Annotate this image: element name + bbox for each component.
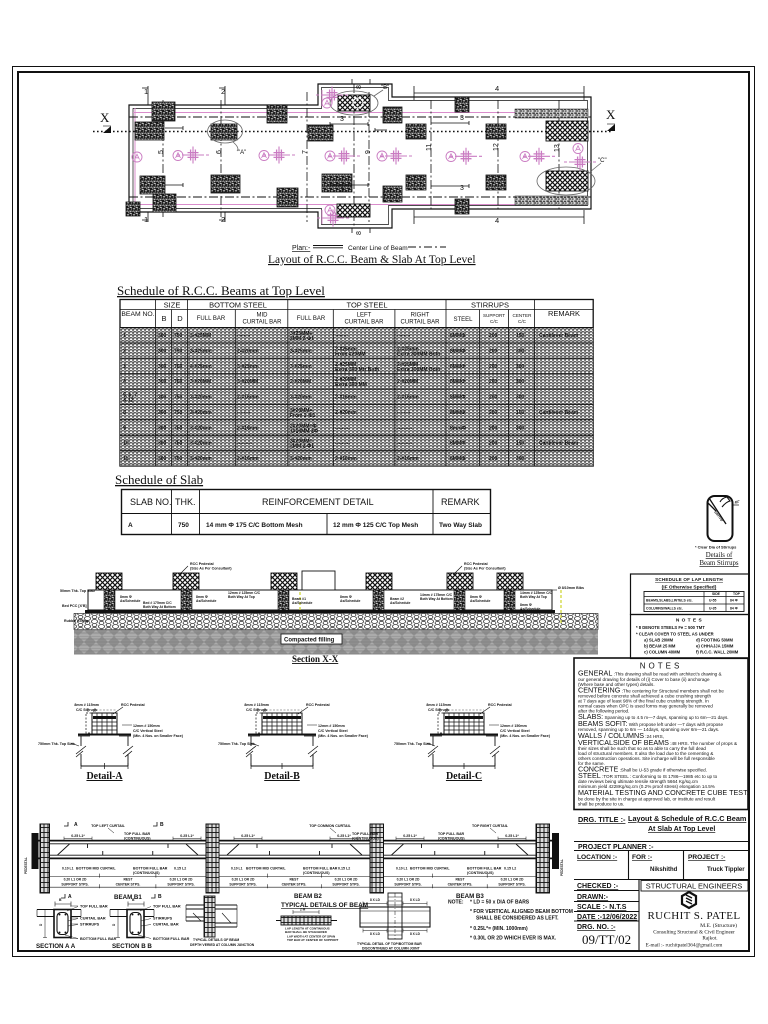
- svg-text:BOTTOM STEEL: BOTTOM STEEL: [209, 301, 267, 310]
- svg-text:C/C Stirrups: C/C Stirrups: [428, 708, 449, 712]
- svg-text:84 Ф: 84 Ф: [730, 607, 738, 611]
- svg-text:0.20 L1 OR 2D: 0.20 L1 OR 2D: [232, 877, 255, 881]
- svg-text:TOP FULL BAR: TOP FULL BAR: [153, 905, 181, 909]
- svg-text:4-#25mm: 4-#25mm: [190, 364, 212, 370]
- svg-text:9: 9: [123, 425, 126, 431]
- svg-text:C/C: C/C: [490, 319, 499, 324]
- svg-text:3-#20mm: 3-#20mm: [290, 456, 312, 462]
- svg-text:--------: --------: [397, 410, 411, 416]
- svg-text:f) R.C.C. WALL 20MM: f) R.C.C. WALL 20MM: [696, 650, 739, 655]
- svg-text:SUPPORT: SUPPORT: [483, 313, 505, 318]
- svg-text:200: 200: [489, 395, 498, 401]
- svg-text:BAR SHALL BE STAGGERED: BAR SHALL BE STAGGERED: [285, 930, 328, 934]
- svg-text:4: 4: [495, 84, 499, 93]
- svg-text:REMARK: REMARK: [441, 497, 480, 507]
- svg-text:0.20 L1 OR 2D: 0.20 L1 OR 2D: [501, 877, 524, 881]
- svg-text:300: 300: [158, 348, 167, 354]
- svg-text:8 X LD: 8 X LD: [370, 932, 381, 936]
- svg-text:2-#16mm: 2-#16mm: [237, 456, 259, 462]
- svg-text:2-#16mm: 2-#16mm: [335, 395, 357, 401]
- svg-text:TYPICAL DETAILS OF BEAM: TYPICAL DETAILS OF BEAM: [193, 938, 239, 942]
- svg-text:3: 3: [340, 187, 344, 194]
- svg-text:* CLEAR COVER TO STEEL AS UND: * CLEAR COVER TO STEEL AS UNDER: [636, 632, 714, 637]
- svg-text:TYPICAL DETAILS OF BEAM: TYPICAL DETAILS OF BEAM: [281, 902, 368, 909]
- svg-text:8MMФ: 8MMФ: [450, 441, 466, 447]
- svg-text:300: 300: [516, 456, 525, 462]
- svg-text:12: 12: [493, 143, 500, 151]
- svg-text:RUCHIT S. PATEL: RUCHIT S. PATEL: [647, 910, 740, 922]
- svg-text:Compacted filling: Compacted filling: [284, 638, 335, 644]
- svg-text:150: 150: [516, 333, 525, 339]
- svg-text:* Clear Dia of Stirrups: * Clear Dia of Stirrups: [695, 545, 737, 550]
- svg-text:BOTTOM FULL BAR: BOTTOM FULL BAR: [467, 867, 502, 871]
- svg-text:750mm Thk. Top Slab: 750mm Thk. Top Slab: [38, 742, 75, 746]
- svg-text:300: 300: [516, 395, 525, 401]
- svg-text:RCC Pedestal: RCC Pedestal: [121, 703, 145, 707]
- svg-text:Cantilever Beam: Cantilever Beam: [539, 333, 579, 339]
- svg-text:1: 1: [144, 215, 148, 224]
- svg-text:13: 13: [554, 144, 561, 152]
- svg-text:0.25 L1*: 0.25 L1*: [180, 834, 194, 838]
- svg-text:300: 300: [516, 425, 525, 431]
- svg-text:As/Schedule: As/Schedule: [196, 599, 216, 603]
- svg-text:NOTE:: NOTE:: [448, 900, 464, 906]
- svg-text:Detail-C: Detail-C: [446, 771, 482, 782]
- svg-text:DEPTH VERIED AT COLUMN JUNCTI: DEPTH VERIED AT COLUMN JUNCTION: [190, 943, 255, 947]
- svg-text:750: 750: [174, 395, 183, 401]
- svg-text:200: 200: [489, 410, 498, 416]
- svg-text:0.20 L1 OR 2D: 0.20 L1 OR 2D: [335, 877, 358, 881]
- svg-text:TOP FULL BAR: TOP FULL BAR: [352, 832, 379, 836]
- svg-text:Cantilever Beam: Cantilever Beam: [539, 441, 579, 447]
- svg-text:11: 11: [123, 456, 129, 462]
- svg-text:TOP RIGHT CURTAIL: TOP RIGHT CURTAIL: [472, 824, 509, 828]
- svg-text:Two Way Slab: Two Way Slab: [439, 522, 482, 529]
- svg-text:3-#20MM: 3-#20MM: [190, 379, 211, 385]
- svg-text:FULL BAR: FULL BAR: [297, 316, 326, 322]
- svg-text:From 2-Ф1: From 2-Ф1: [290, 413, 316, 419]
- svg-text:FOR :-: FOR :-: [632, 854, 652, 861]
- svg-text:(Size As Per Consultant): (Size As Per Consultant): [464, 567, 506, 571]
- svg-text:CURTAIL BAR: CURTAIL BAR: [401, 320, 441, 326]
- svg-text:SUPPORT STPS.: SUPPORT STPS.: [332, 883, 359, 887]
- svg-text:E-mail :- ruchitpatel364@gmail: E-mail :- ruchitpatel364@gmail.com: [646, 943, 723, 949]
- svg-text:10: 10: [123, 441, 129, 447]
- svg-text:2 M: 2 M: [300, 908, 306, 912]
- svg-text:C/C Vertical Steel: C/C Vertical Steel: [500, 729, 530, 733]
- svg-text:8mm # 115mm: 8mm # 115mm: [244, 703, 269, 707]
- svg-text:"B": "B": [381, 85, 389, 91]
- svg-text:2-#20mm: 2-#20mm: [335, 410, 357, 416]
- svg-text:Extra 300 MM: Extra 300 MM: [335, 382, 367, 388]
- svg-text:0.25 L1*: 0.25 L1*: [337, 834, 351, 838]
- svg-text:BOTTOM MID CURTAIL: BOTTOM MID CURTAIL: [76, 867, 116, 871]
- svg-text:8mm # 115mm: 8mm # 115mm: [426, 703, 451, 707]
- svg-text:U-35: U-35: [709, 607, 716, 611]
- svg-text:---------: ---------: [397, 441, 412, 447]
- svg-text:BOTTOM FULL BAR: BOTTOM FULL BAR: [133, 867, 168, 871]
- svg-text:Consulting Structural & Civil: Consulting Structural & Civil Engineer: [653, 930, 735, 936]
- svg-text:--------: --------: [335, 333, 349, 339]
- svg-text:a) SLAB 20MM: a) SLAB 20MM: [644, 638, 674, 643]
- svg-text:Extra 300MM Both: Extra 300MM Both: [397, 351, 440, 357]
- svg-text:CURTAIL BAR: CURTAIL BAR: [80, 917, 106, 921]
- svg-text:SIZE: SIZE: [164, 301, 181, 310]
- svg-text:12mm # 150mm: 12mm # 150mm: [133, 724, 160, 728]
- svg-text:3-#20mm: 3-#20mm: [190, 425, 212, 431]
- svg-text:Section X-X: Section X-X: [292, 654, 339, 664]
- svg-text:* FOR VERTICAL ALIGNED BEA: * FOR VERTICAL ALIGNED BEAM BOTTOM: [470, 909, 573, 915]
- svg-text:3: 3: [340, 116, 344, 123]
- svg-text:TYPICAL DETAIL OF TOP/BOTTOM B: TYPICAL DETAIL OF TOP/BOTTOM BAR: [357, 942, 422, 946]
- svg-text:SIDE: SIDE: [712, 592, 721, 596]
- svg-text:1: 1: [123, 333, 126, 339]
- svg-text:As/Schedule: As/Schedule: [390, 601, 410, 605]
- svg-text:DATE :-12/06/2022: DATE :-12/06/2022: [577, 914, 637, 921]
- svg-text:8MMФ: 8MMФ: [450, 333, 466, 339]
- svg-text:750: 750: [174, 379, 183, 385]
- svg-text:14 mm Ф 175 C/C Bottom Mesh: 14 mm Ф 175 C/C Bottom Mesh: [206, 522, 303, 529]
- svg-text:2: 2: [221, 215, 225, 224]
- svg-text:0.20 L1 OR 2D: 0.20 L1 OR 2D: [397, 877, 420, 881]
- svg-text:SHALL BE CONSIDERED AS LEF: SHALL BE CONSIDERED AS LEFT.: [476, 916, 559, 922]
- svg-text:1#16MM 2Ф: 1#16MM 2Ф: [290, 428, 319, 434]
- svg-text:50mm Thk. Top Slab: 50mm Thk. Top Slab: [60, 589, 95, 593]
- svg-text:Both Way At Bottom: Both Way At Bottom: [143, 605, 176, 609]
- svg-text:Schedule of R.C.C. Beams at To: Schedule of R.C.C. Beams at Top Level: [117, 283, 325, 298]
- svg-text:STIRRUPS: STIRRUPS: [80, 923, 100, 927]
- svg-text:Both Way At Bottom: Both Way At Bottom: [420, 597, 453, 601]
- svg-text:SUPPORT STPS.: SUPPORT STPS.: [394, 883, 421, 887]
- svg-text:750: 750: [174, 441, 183, 447]
- svg-text:4: 4: [123, 379, 126, 385]
- svg-text:X: X: [606, 107, 616, 122]
- svg-text:8MMФ: 8MMФ: [450, 395, 466, 401]
- svg-text:BEAM B1: BEAM B1: [114, 894, 142, 901]
- svg-text:DRG. TITLE :-: DRG. TITLE :-: [578, 815, 626, 824]
- svg-text:7: 7: [302, 150, 309, 154]
- svg-text:BEAM B2: BEAM B2: [294, 893, 322, 900]
- svg-text:0.10 L1: 0.10 L1: [396, 867, 408, 871]
- svg-text:12mm # 150mm: 12mm # 150mm: [318, 724, 345, 728]
- svg-text:(CONTINUOUS): (CONTINUOUS): [467, 871, 494, 875]
- svg-text:(CONTINUOUS): (CONTINUOUS): [133, 871, 160, 875]
- svg-text:3: 3: [123, 364, 126, 370]
- svg-text:"A": "A": [238, 150, 246, 156]
- svg-text:RIGHT: RIGHT: [411, 313, 430, 319]
- svg-text:C/C Vertical Steel: C/C Vertical Steel: [133, 729, 163, 733]
- svg-text:200: 200: [489, 441, 498, 447]
- svg-text:2MM 2-Ф1: 2MM 2-Ф1: [290, 336, 314, 342]
- svg-text:REST: REST: [123, 877, 133, 881]
- svg-text:REST: REST: [289, 877, 299, 881]
- svg-text:Rajkot.: Rajkot.: [702, 936, 717, 942]
- svg-text:12 mm Ф 125 C/C Top Mesh: 12 mm Ф 125 C/C Top Mesh: [333, 522, 418, 529]
- svg-text:2-#20MM: 2-#20MM: [290, 379, 311, 385]
- svg-text:TOP LEFT CURTAIL: TOP LEFT CURTAIL: [91, 824, 126, 828]
- svg-text:3-#20MM: 3-#20MM: [237, 379, 258, 385]
- svg-text:Extra 300MM Both: Extra 300MM Both: [397, 367, 440, 373]
- svg-text:--------: --------: [237, 333, 251, 339]
- svg-text:TOP BAR AT CENTER OF SUPPORT: TOP BAR AT CENTER OF SUPPORT: [287, 938, 339, 942]
- svg-text:At Slab At Top Level: At Slab At Top Level: [648, 826, 715, 833]
- svg-text:C/C Stirrups: C/C Stirrups: [76, 708, 97, 712]
- svg-text:0.25 L1*: 0.25 L1*: [71, 834, 85, 838]
- svg-text:& 12: & 12: [123, 398, 134, 404]
- svg-text:300: 300: [516, 379, 525, 385]
- svg-text:9: 9: [365, 150, 372, 154]
- svg-text:c) COLUMN 40MM: c) COLUMN 40MM: [644, 650, 681, 655]
- svg-text:2: 2: [123, 348, 126, 354]
- svg-text:As/Schedule: As/Schedule: [520, 607, 540, 611]
- svg-text:SUPPORT STPS.: SUPPORT STPS.: [61, 883, 88, 887]
- svg-text:0.15 L2: 0.15 L2: [504, 867, 516, 871]
- svg-text:300: 300: [158, 379, 167, 385]
- svg-text:3-#20mm: 3-#20mm: [190, 456, 212, 462]
- svg-text:300: 300: [158, 441, 167, 447]
- svg-text:Ø 8/10mm Bibs: Ø 8/10mm Bibs: [558, 586, 584, 590]
- svg-text:CURTAIL BAR: CURTAIL BAR: [153, 923, 179, 927]
- svg-text:8MMФ: 8MMФ: [450, 410, 466, 416]
- svg-text:(Min. 4 Nos. on Smaller Face): (Min. 4 Nos. on Smaller Face): [500, 734, 551, 738]
- svg-text:REINFORCEMENT DETAIL: REINFORCEMENT DETAIL: [262, 497, 374, 507]
- svg-text:STEEL: STEEL: [453, 317, 473, 323]
- svg-text:RCC Pedestal: RCC Pedestal: [488, 703, 512, 707]
- svg-text:750: 750: [174, 333, 183, 339]
- svg-text:84 Ф: 84 Ф: [730, 599, 738, 603]
- svg-text:TOP FULL BAR: TOP FULL BAR: [438, 832, 465, 836]
- svg-text:Details of: Details of: [706, 552, 733, 559]
- svg-text:200: 200: [489, 333, 498, 339]
- svg-text:Layout & Schedule of R.C.C Bea: Layout & Schedule of R.C.C Beam: [628, 814, 747, 823]
- svg-text:750mm Thk. Top Slab: 750mm Thk. Top Slab: [394, 742, 431, 746]
- svg-text:BOTTOM FULL BAR: BOTTOM FULL BAR: [153, 937, 190, 941]
- svg-text:2-#16mm: 2-#16mm: [237, 425, 259, 431]
- svg-text:750: 750: [174, 456, 183, 462]
- svg-text:B: B: [158, 894, 162, 900]
- svg-text:b) BEAM 25 MM: b) BEAM 25 MM: [644, 644, 676, 649]
- svg-text:3-#25mm: 3-#25mm: [290, 364, 312, 370]
- svg-text:3-#25MM: 3-#25MM: [190, 333, 211, 339]
- svg-text:C/C Vertical Steel: C/C Vertical Steel: [318, 729, 348, 733]
- svg-text:300: 300: [516, 364, 525, 370]
- svg-text:0.20 L1 OR 2D: 0.20 L1 OR 2D: [170, 877, 193, 881]
- svg-text:300: 300: [158, 395, 167, 401]
- svg-text:---------: ---------: [237, 441, 252, 447]
- svg-text:CENTER STPS.: CENTER STPS.: [116, 883, 141, 887]
- svg-text:200: 200: [489, 425, 498, 431]
- svg-text:(IF Otherwise Specified): (IF Otherwise Specified): [662, 585, 717, 591]
- svg-text:0.10 L1: 0.10 L1: [231, 867, 243, 871]
- svg-text:BEAMS,SLABS,LINTELS etc.: BEAMS,SLABS,LINTELS etc.: [646, 599, 693, 603]
- svg-text:LEFT: LEFT: [357, 313, 372, 319]
- svg-text:0.20 L1 OR 2D: 0.20 L1 OR 2D: [64, 877, 87, 881]
- svg-text:PEDESTAL: PEDESTAL: [560, 859, 564, 876]
- svg-text:750: 750: [174, 348, 183, 354]
- svg-text:3: 3: [460, 115, 464, 122]
- svg-text:Schedule of Slab: Schedule of Slab: [115, 472, 203, 487]
- svg-text:Rubble Soling: Rubble Soling: [64, 619, 88, 623]
- svg-text:DRG. NO. :-: DRG. NO. :-: [577, 924, 616, 931]
- svg-text:0.25 L1*: 0.25 L1*: [403, 834, 417, 838]
- svg-text:300: 300: [158, 410, 167, 416]
- svg-text:As/Schedule: As/Schedule: [292, 601, 312, 605]
- svg-text:300: 300: [516, 348, 525, 354]
- svg-text:Beam Stirrups: Beam Stirrups: [699, 560, 738, 567]
- svg-text:PROJECT :-: PROJECT :-: [688, 854, 725, 861]
- svg-text:Nikshithd: Nikshithd: [650, 867, 678, 873]
- svg-text:12mm # 150mm: 12mm # 150mm: [500, 724, 527, 728]
- svg-text:SLAB NO.: SLAB NO.: [130, 497, 172, 507]
- svg-text:Both Way At Top: Both Way At Top: [228, 595, 255, 599]
- svg-text:300: 300: [158, 333, 167, 339]
- svg-text:150: 150: [516, 441, 525, 447]
- svg-text:3-#20mm: 3-#20mm: [190, 395, 212, 401]
- svg-text:NOTES: NOTES: [640, 662, 683, 671]
- svg-text:B: B: [160, 822, 164, 828]
- svg-text:D: D: [177, 314, 183, 323]
- svg-text:MID: MID: [257, 313, 269, 319]
- svg-text:8: 8: [356, 85, 363, 89]
- svg-text:BEAM NO.: BEAM NO.: [121, 311, 154, 318]
- svg-text:200: 200: [489, 364, 498, 370]
- svg-text:* 0.25L*= (MIN. 1000mm): * 0.25L*= (MIN. 1000mm): [470, 926, 528, 932]
- svg-text:8: 8: [356, 231, 363, 235]
- svg-text:U-55: U-55: [709, 599, 716, 603]
- svg-text:(Size As Per Consultant): (Size As Per Consultant): [190, 567, 232, 571]
- svg-text:(Min. 4 Nos. on Smaller Face): (Min. 4 Nos. on Smaller Face): [318, 734, 369, 738]
- svg-text:A: A: [128, 522, 133, 529]
- svg-text:8MMФ: 8MMФ: [450, 379, 466, 385]
- svg-text:8MMФ: 8MMФ: [450, 456, 466, 462]
- svg-text:2-#16mm: 2-#16mm: [335, 456, 357, 462]
- svg-text:TOP STEEL: TOP STEEL: [347, 301, 388, 310]
- svg-text:8: 8: [123, 410, 126, 416]
- svg-text:FULL BAR: FULL BAR: [197, 316, 226, 322]
- svg-text:2-#16mm: 2-#16mm: [237, 395, 259, 401]
- svg-text:750: 750: [174, 410, 183, 416]
- svg-text:8 X LD: 8 X LD: [410, 932, 421, 936]
- svg-text:2-#20MM: 2-#20MM: [397, 379, 418, 385]
- svg-text:(CONTINUOUS): (CONTINUOUS): [124, 837, 151, 841]
- svg-text:COLUMNS/WALLS etc.: COLUMNS/WALLS etc.: [646, 607, 683, 611]
- svg-text:(Min. 4 Nos. on Smaller Face): (Min. 4 Nos. on Smaller Face): [133, 734, 184, 738]
- svg-text:CURTAIL BAR: CURTAIL BAR: [243, 320, 283, 326]
- svg-text:STIRRUPS: STIRRUPS: [471, 301, 509, 310]
- svg-text:TOP FULL BAR: TOP FULL BAR: [80, 905, 108, 909]
- svg-text:--------: --------: [397, 333, 411, 339]
- svg-text:STRUCTURAL ENGINEERS: STRUCTURAL ENGINEERS: [646, 882, 742, 891]
- svg-text:3-#25mm: 3-#25mm: [190, 348, 212, 354]
- svg-text:TOP FULL BAR: TOP FULL BAR: [124, 832, 151, 836]
- svg-text:---------: ---------: [335, 425, 350, 431]
- svg-text:Cantilever Beam: Cantilever Beam: [539, 410, 579, 416]
- svg-text:THK.: THK.: [175, 497, 196, 507]
- svg-text:3-#25mm: 3-#25mm: [290, 348, 312, 354]
- svg-text:SUPPORT STPS.: SUPPORT STPS.: [167, 883, 194, 887]
- svg-text:0.25 L1*: 0.25 L1*: [241, 834, 255, 838]
- svg-text:8mmФ: 8mmФ: [450, 425, 467, 431]
- svg-text:RCC Pedestal: RCC Pedestal: [306, 703, 330, 707]
- svg-text:LOCATION :-: LOCATION :-: [577, 854, 617, 861]
- svg-text:C/C Stirrups: C/C Stirrups: [246, 708, 267, 712]
- svg-text:STIRRUPS: STIRRUPS: [153, 917, 173, 921]
- svg-text:2-#16mm: 2-#16mm: [397, 395, 419, 401]
- svg-text:BOTTOM MID CURTAIL: BOTTOM MID CURTAIL: [246, 867, 286, 871]
- svg-text:200: 200: [489, 348, 498, 354]
- svg-text:Detail-B: Detail-B: [264, 771, 300, 782]
- svg-text:3-#20mm: 3-#20mm: [190, 410, 212, 416]
- svg-text:TOP COMMON CURTAIL: TOP COMMON CURTAIL: [309, 824, 351, 828]
- svg-text:* LD = 50 x DIA OF BARS: * LD = 50 x DIA OF BARS: [470, 900, 530, 906]
- svg-text:2-#20mm: 2-#20mm: [237, 348, 259, 354]
- svg-text:09/TT/02: 09/TT/02: [582, 932, 631, 947]
- svg-text:DISCONTINUED AT COLUMN JOINT: DISCONTINUED AT COLUMN JOINT: [362, 947, 421, 951]
- svg-text:REMARK: REMARK: [548, 309, 580, 318]
- svg-text:CENTER: CENTER: [513, 313, 533, 318]
- svg-text:"C": "C": [598, 158, 607, 164]
- svg-text:A: A: [68, 894, 72, 900]
- svg-text:11: 11: [426, 144, 433, 151]
- svg-text:SUPPORT STPS.: SUPPORT STPS.: [229, 883, 256, 887]
- svg-text:Extra 300 Mtr Both: Extra 300 Mtr Both: [335, 367, 379, 373]
- svg-text:200: 200: [489, 456, 498, 462]
- svg-text:e) CHHAJJA 15MM: e) CHHAJJA 15MM: [696, 644, 734, 649]
- svg-text:Center Line of Beam: Center Line of Beam: [348, 245, 408, 252]
- svg-text:(CONTINUOUS): (CONTINUOUS): [303, 871, 330, 875]
- svg-text:200: 200: [489, 379, 498, 385]
- svg-text:TOP: TOP: [733, 592, 741, 596]
- svg-text:0.15 L2: 0.15 L2: [174, 867, 186, 871]
- svg-text:d) FOOTING 50MM: d) FOOTING 50MM: [696, 638, 734, 643]
- svg-text:300: 300: [158, 456, 167, 462]
- svg-text:As/Schedule: As/Schedule: [120, 599, 140, 603]
- svg-text:REST: REST: [455, 877, 465, 881]
- svg-text:750: 750: [178, 522, 189, 529]
- svg-text:8MMФ: 8MMФ: [450, 364, 466, 370]
- svg-text:SUPPORT STPS.: SUPPORT STPS.: [498, 883, 525, 887]
- svg-text:PROJECT PLANNER :-: PROJECT PLANNER :-: [578, 844, 654, 851]
- svg-text:SECTION A A: SECTION A A: [36, 943, 76, 950]
- svg-text:DRAWN:-: DRAWN:-: [577, 894, 609, 901]
- svg-text:RCC Pedestal: RCC Pedestal: [464, 562, 488, 566]
- svg-text:150: 150: [516, 410, 525, 416]
- svg-text:Layout of R.C.C. Beam & Slab A: Layout of R.C.C. Beam & Slab At Top Leve…: [268, 254, 476, 266]
- svg-text:Bed PCC [X'B]: Bed PCC [X'B]: [62, 604, 87, 608]
- svg-text:---------: ---------: [335, 441, 350, 447]
- svg-text:300: 300: [158, 425, 167, 431]
- svg-text:8mm # 115mm: 8mm # 115mm: [74, 703, 99, 707]
- svg-text:X: X: [100, 110, 110, 125]
- svg-text:N O T E S: N O T E S: [676, 618, 703, 624]
- svg-text:750: 750: [174, 364, 183, 370]
- svg-text:BOTTOM FULL BAR: BOTTOM FULL BAR: [80, 937, 117, 941]
- svg-text:8 X LD: 8 X LD: [410, 898, 421, 902]
- svg-text:5: 5: [158, 150, 165, 154]
- svg-text:Truck Tippler: Truck Tippler: [707, 867, 745, 873]
- svg-text:0.25 L1*: 0.25 L1*: [505, 834, 519, 838]
- svg-text:BOTTOM FULL BAR: BOTTOM FULL BAR: [303, 867, 338, 871]
- svg-text:300: 300: [158, 364, 167, 370]
- svg-text:* 0.30L OR 2D WHICH EVER: * 0.30L OR 2D WHICH EVER IS MAX.: [470, 936, 557, 942]
- svg-text:From #20MM: From #20MM: [335, 351, 366, 357]
- svg-text:BOTTOM MID CURTAIL: BOTTOM MID CURTAIL: [410, 867, 450, 871]
- svg-text:As/Schedule: As/Schedule: [470, 599, 490, 603]
- svg-text:shall be produce to us.: shall be produce to us.: [578, 802, 624, 807]
- svg-text:---------: ---------: [397, 425, 412, 431]
- svg-text:Both Way At Top: Both Way At Top: [520, 595, 547, 599]
- svg-text:A: A: [74, 822, 78, 828]
